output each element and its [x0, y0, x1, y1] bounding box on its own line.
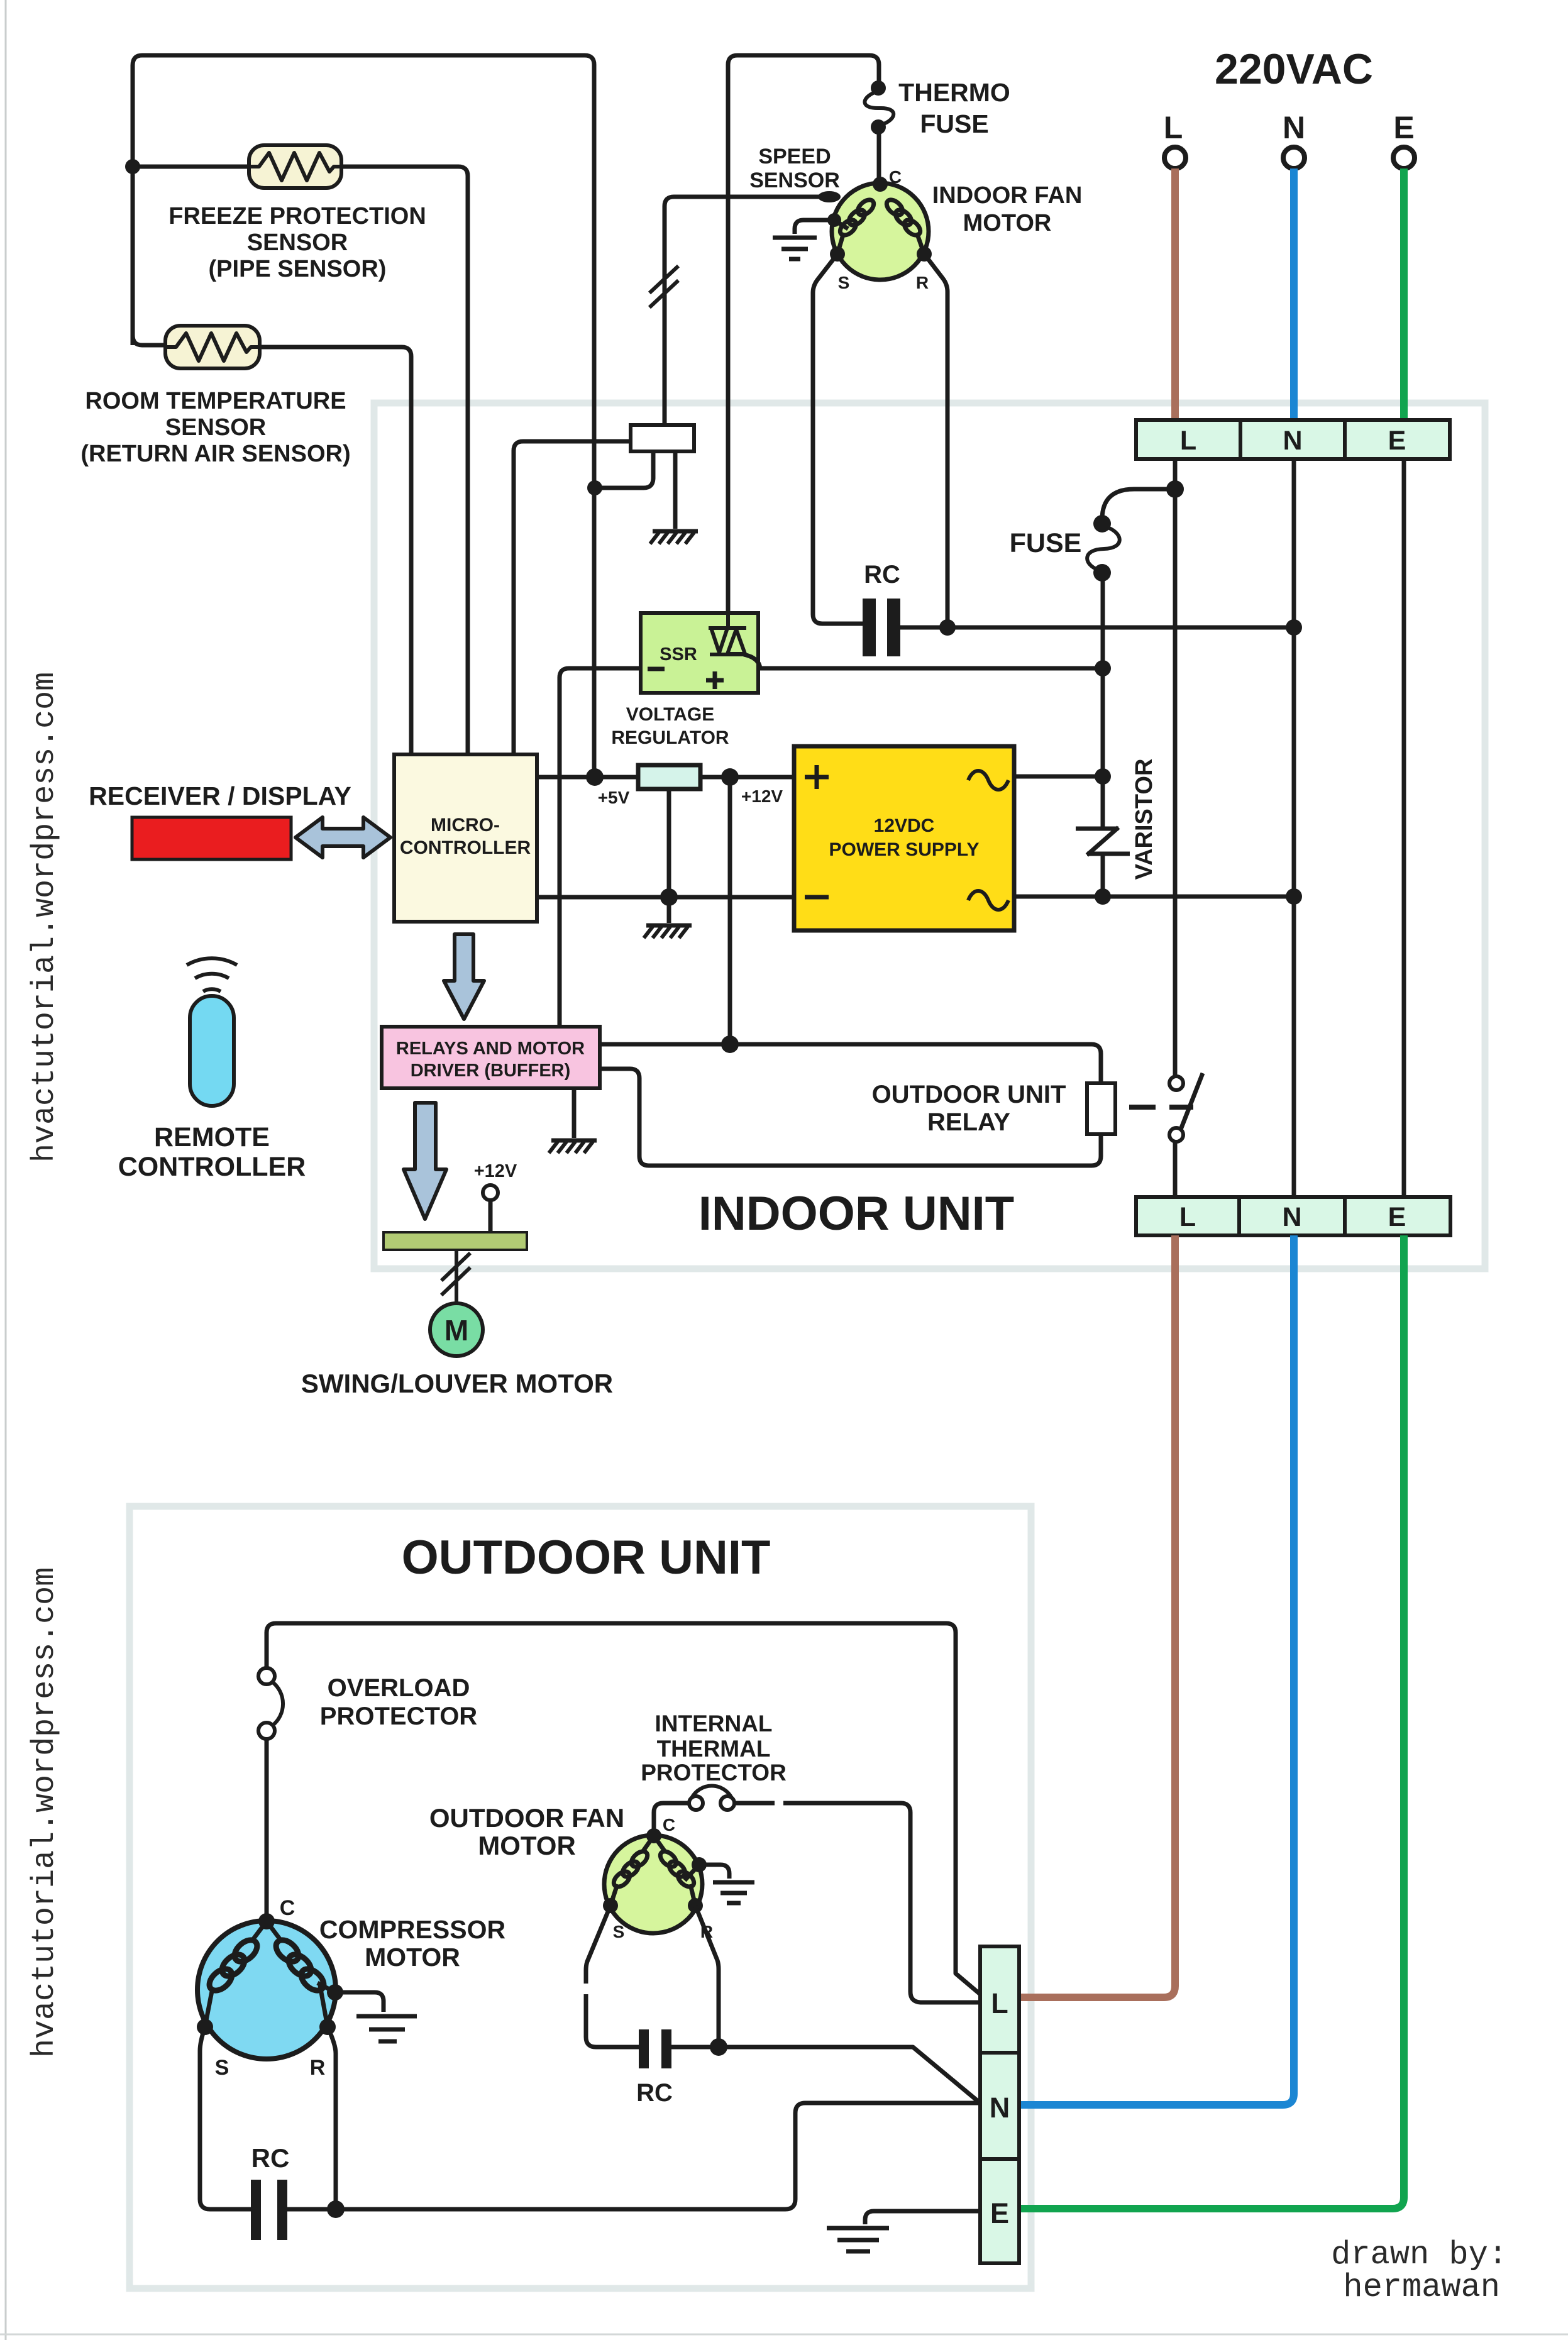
svg-text:E: E [1393, 110, 1414, 145]
svg-text:MOTOR: MOTOR [963, 210, 1052, 236]
svg-text:SPEED: SPEED [758, 145, 831, 168]
svg-text:FUSE: FUSE [920, 109, 988, 138]
svg-text:N: N [990, 2092, 1010, 2124]
svg-text:L: L [1179, 1202, 1196, 1232]
svg-text:SSR: SSR [660, 644, 697, 665]
svg-text:THERMAL: THERMAL [657, 1736, 771, 1762]
svg-text:DRIVER (BUFFER): DRIVER (BUFFER) [411, 1061, 571, 1081]
svg-text:RC: RC [251, 2143, 290, 2173]
svg-text:VOLTAGE: VOLTAGE [626, 704, 715, 725]
svg-text:VARISTOR: VARISTOR [1131, 759, 1157, 880]
svg-text:RC: RC [864, 561, 900, 588]
svg-text:220VAC: 220VAC [1215, 45, 1373, 93]
svg-text:MOTOR: MOTOR [365, 1943, 460, 1972]
svg-text:S: S [215, 2056, 229, 2080]
svg-text:MOTOR: MOTOR [478, 1831, 576, 1860]
svg-text:POWER SUPPLY: POWER SUPPLY [829, 839, 980, 860]
svg-text:S: S [838, 273, 850, 292]
svg-text:INDOOR UNIT: INDOOR UNIT [698, 1187, 1014, 1240]
svg-text:N: N [1283, 110, 1305, 145]
svg-text:REGULATOR: REGULATOR [611, 727, 729, 748]
svg-text:INDOOR FAN: INDOOR FAN [932, 182, 1083, 209]
svg-text:CONTROLLER: CONTROLLER [118, 1152, 306, 1182]
svg-text:R: R [310, 2056, 326, 2080]
svg-text:RELAYS AND MOTOR: RELAYS AND MOTOR [396, 1039, 585, 1059]
svg-text:INTERNAL: INTERNAL [654, 1711, 772, 1736]
svg-text:OUTDOOR UNIT: OUTDOOR UNIT [872, 1081, 1066, 1108]
svg-text:C: C [280, 1896, 295, 1920]
svg-text:RELAY: RELAY [927, 1108, 1010, 1136]
svg-text:SENSOR: SENSOR [749, 168, 840, 192]
svg-text:+12V: +12V [474, 1161, 517, 1181]
svg-text:SENSOR: SENSOR [165, 414, 266, 441]
svg-text:N: N [1282, 1202, 1301, 1232]
svg-text:hvactutorial.wordpress.com: hvactutorial.wordpress.com [27, 1567, 63, 2058]
svg-text:12VDC: 12VDC [874, 815, 935, 836]
svg-text:FUSE: FUSE [1010, 528, 1082, 558]
svg-text:L: L [1164, 110, 1183, 145]
svg-text:E: E [1388, 1202, 1406, 1232]
svg-text:PROTECTOR: PROTECTOR [320, 1703, 478, 1730]
svg-text:L: L [1180, 426, 1196, 456]
svg-text:SENSOR: SENSOR [247, 229, 348, 256]
svg-text:C: C [889, 167, 902, 187]
svg-text:+5V: +5V [598, 788, 630, 807]
svg-text:+12V: +12V [741, 786, 783, 806]
svg-text:REMOTE: REMOTE [154, 1122, 270, 1152]
svg-text:THERMO: THERMO [898, 78, 1010, 107]
svg-text:SWING/LOUVER MOTOR: SWING/LOUVER MOTOR [301, 1369, 613, 1398]
svg-text:RECEIVER / DISPLAY: RECEIVER / DISPLAY [89, 781, 351, 810]
svg-text:(PIPE SENSOR): (PIPE SENSOR) [209, 256, 387, 282]
svg-text:RC: RC [636, 2079, 673, 2107]
svg-text:FREEZE PROTECTION: FREEZE PROTECTION [168, 203, 426, 229]
svg-text:M: M [444, 1314, 468, 1347]
svg-text:N: N [1283, 426, 1302, 456]
svg-text:MICRO-: MICRO- [431, 815, 500, 836]
svg-text:OVERLOAD: OVERLOAD [328, 1674, 470, 1702]
svg-text:ROOM TEMPERATURE: ROOM TEMPERATURE [85, 388, 346, 414]
svg-text:PROTECTOR: PROTECTOR [641, 1760, 787, 1785]
svg-text:drawn by:: drawn by: [1331, 2236, 1508, 2273]
svg-text:OUTDOOR FAN: OUTDOOR FAN [429, 1803, 624, 1833]
svg-text:E: E [990, 2197, 1009, 2229]
svg-text:E: E [1388, 426, 1406, 456]
svg-text:COMPRESSOR: COMPRESSOR [319, 1915, 505, 1944]
svg-text:CONTROLLER: CONTROLLER [400, 837, 531, 858]
svg-text:C: C [663, 1815, 675, 1835]
svg-text:L: L [991, 1987, 1008, 2019]
svg-text:R: R [916, 273, 929, 292]
svg-text:hvactutorial.wordpress.com: hvactutorial.wordpress.com [27, 672, 63, 1162]
svg-text:S: S [613, 1922, 625, 1941]
svg-text:OUTDOOR UNIT: OUTDOOR UNIT [402, 1531, 771, 1584]
svg-text:hermawan: hermawan [1343, 2269, 1500, 2306]
svg-text:(RETURN AIR SENSOR): (RETURN AIR SENSOR) [80, 441, 350, 467]
